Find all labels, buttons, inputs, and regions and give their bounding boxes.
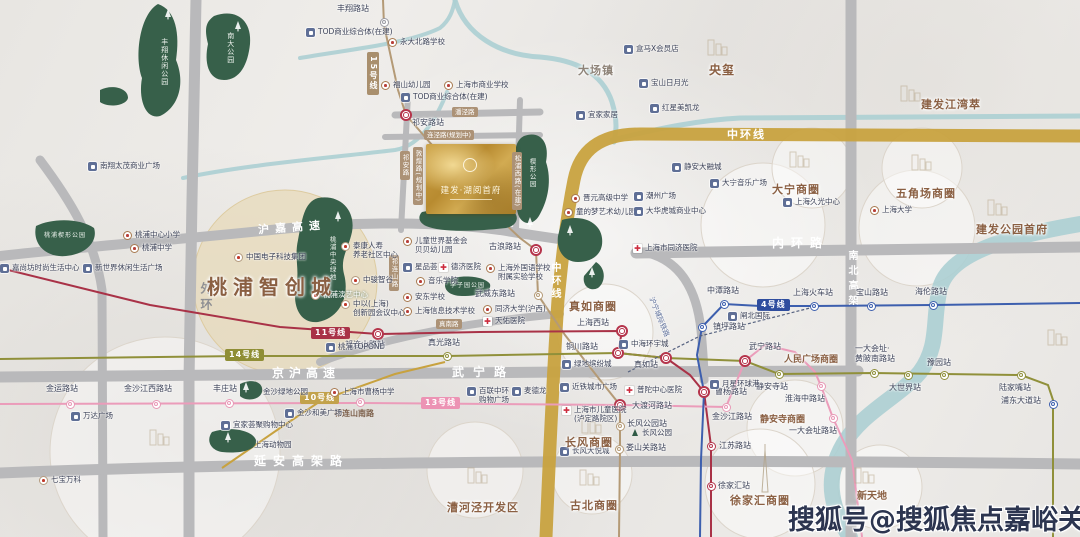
poi-label-line: 德济医院 (451, 262, 481, 271)
poi-label-line: 七宝万科 (51, 475, 81, 484)
building-sketch-icon (1062, 337, 1067, 345)
poi-label: 儿童世界基金会贝贝幼儿园 (415, 236, 468, 255)
school-icon (123, 231, 132, 240)
station-label-line: 祁安路站 (412, 118, 444, 128)
poi-label: 安东学校 (415, 292, 445, 301)
poi-label-line: (泸定路院区) (574, 414, 627, 423)
station-label-line: 一大会址· (855, 344, 895, 354)
poi-label: 同济大学(沪西) (495, 304, 546, 313)
poi-label-line: 上海市同济医院 (645, 243, 698, 252)
station-label: 大渡河路站 (632, 401, 672, 411)
road (0, 371, 858, 377)
hosp-icon (483, 317, 492, 326)
metro-station (707, 482, 716, 491)
station-label: 一大会址·黄陂南路站 (855, 344, 895, 363)
station-label: 祁安路站 (412, 118, 444, 128)
poi-label-line: 中骏智谷 (363, 275, 393, 284)
dot-icon (234, 253, 243, 262)
area-label: 大场镇 (578, 62, 614, 78)
metro-station (660, 352, 672, 364)
mall-icon (467, 387, 476, 396)
dot-icon (341, 300, 350, 309)
poi-label: 中国电子科技集团 (246, 252, 306, 261)
poi-label-line: 长风公园 (642, 428, 672, 437)
station-label-line: 浦东大道站 (1001, 396, 1041, 406)
area-label: 新天地 (857, 487, 887, 502)
metro-line-badge: 15号线 (367, 52, 379, 95)
poi-label-line: 桃浦中学 (142, 243, 172, 252)
poi-label-line: 盒马X会员店 (636, 44, 679, 53)
area-label: 建发公园首府 (976, 221, 1048, 237)
station-label-line: 铜川路站 (566, 342, 598, 352)
road-name-pill: 松浦西路(在建) (512, 152, 522, 210)
station-label: 金沙江路站 (712, 412, 752, 422)
poi-label-line: 金沙和美广场 (297, 408, 342, 417)
area-label: 静安寺商圈 (760, 412, 805, 425)
poi-label-line: 南翔太茂商业广场 (100, 161, 160, 170)
poi-label-line: 大华虎城商业中心 (646, 206, 706, 215)
school-icon (564, 208, 573, 217)
station-label: 娄山关路站 (626, 443, 666, 453)
station-label-line: 海伦路站 (915, 287, 947, 297)
tree-icon (237, 29, 238, 31)
poi-label: 盒马X会员店 (636, 44, 679, 53)
building-sketch-icon (915, 93, 920, 101)
station-label: 真如站 (634, 360, 658, 370)
metro-station (817, 382, 826, 391)
dot-icon (351, 276, 360, 285)
metro-station (530, 244, 542, 256)
poi-label-line: 万达广场 (83, 411, 113, 420)
poi-label: 金沙和美广场 (297, 408, 342, 417)
poi-label-line: 中国电子科技集团 (246, 252, 306, 261)
station-label-line: 金沙江西路站 (124, 384, 172, 394)
poi-label-line: 静安大融城 (684, 162, 722, 171)
park-label: 桃浦楔形公园 (44, 233, 86, 240)
poi-label: 金沙绿地公园 (263, 387, 308, 396)
building-sketch-icon (722, 47, 727, 55)
building-sketch-icon (716, 44, 721, 55)
poi-label: 上海市同济医院 (645, 243, 698, 252)
road-label: 延安高架路 (254, 452, 349, 469)
area-label: 五角场商圈 (896, 185, 956, 201)
school-icon (330, 388, 339, 397)
metro-station (720, 300, 729, 309)
poi-label-line: 上海市商业学校 (456, 80, 509, 89)
metro-station (615, 445, 624, 454)
road-name-pill: 真南路 (436, 319, 462, 329)
poi-label-line: 同济大学(沪西) (495, 304, 546, 313)
station-label: 海伦路站 (915, 287, 947, 297)
area-label: 建发江湾萃 (921, 96, 981, 112)
metro-station (722, 403, 731, 412)
poi-label: 德济医院 (451, 262, 481, 271)
metro-line-badge: 14号线 (225, 349, 264, 361)
station-label: 宝山路站 (856, 288, 888, 298)
building-sketch-icon (909, 90, 914, 101)
station-label: 曹杨路站 (715, 387, 747, 397)
building-sketch-icon (901, 86, 907, 101)
poi-label-line: 宜家家居 (588, 110, 618, 119)
park (558, 218, 603, 262)
area-label: 桃浦智创城 (207, 271, 337, 300)
metro-station (380, 18, 389, 27)
poi-label-line: 麦德龙 (524, 386, 547, 395)
tree-icon (630, 429, 639, 438)
poi-label: 长风公园 (642, 428, 672, 437)
station-label-line: 大世界站 (889, 383, 921, 393)
mall-icon (403, 263, 412, 272)
poi-label-line: 宜家荟聚购物中心 (233, 420, 293, 429)
station-label-line: 镇坪路站 (713, 322, 745, 332)
poi-label: 上海市商业学校 (456, 80, 509, 89)
road-name-pill: 祁连山路 (389, 255, 399, 291)
poi-label-line: 新世界休闲生活广场 (95, 263, 163, 272)
building-sketch-icon (1002, 207, 1007, 215)
school-icon (486, 264, 495, 273)
station-label-line: 大渡河路站 (632, 401, 672, 411)
poi-label: 星品荟 (415, 262, 438, 271)
poi-label: 近铁城市广场 (572, 382, 617, 391)
metro-station (400, 109, 412, 121)
property-seal-icon (463, 158, 477, 172)
poi-label: 童的梦艺术幼儿园 (576, 207, 636, 216)
poi-label: 上海动物园 (254, 440, 292, 449)
poi-label: 永大北路学校 (400, 37, 445, 46)
station-label-line: 金沙江路站 (712, 412, 752, 422)
station-label: 武宁路站 (749, 342, 781, 352)
poi-label-line: 中以(上海) (353, 299, 406, 308)
mall-icon (710, 380, 719, 389)
poi-label: 上海信息技术学校 (415, 306, 475, 315)
tree-icon (591, 275, 592, 277)
poi-label-line: 绿地缤纷城 (574, 359, 612, 368)
station-label: 江苏路站 (719, 441, 751, 451)
mall-icon (619, 340, 628, 349)
area-label: 大宁商圈 (772, 181, 820, 197)
station-label-line: 淮海中路站 (785, 394, 825, 404)
metro-station (698, 323, 707, 332)
poi-label: 中海环宇城 (631, 339, 669, 348)
station-label: 上海火车站 (793, 288, 833, 298)
area-label: 人民广场商圈 (784, 352, 838, 365)
mall-icon (650, 104, 659, 113)
building-sketch-icon (596, 425, 601, 433)
station-label-line: 一大会址路站 (789, 426, 837, 436)
poi-label: 上海市曹杨中学 (342, 387, 395, 396)
station-label: 豫园站 (927, 358, 951, 368)
station-label-line: 黄陂南路站 (855, 354, 895, 364)
poi-label-line: 永大北路学校 (400, 37, 445, 46)
poi-label: 上海大学 (882, 205, 912, 214)
poi-label: 七宝万科 (51, 475, 81, 484)
metro-station (225, 399, 234, 408)
school-icon (416, 277, 425, 286)
station-label-line: 徐家汇站 (718, 481, 750, 491)
metro-station (616, 325, 628, 337)
poi-label-line: 创新园会议中心 (353, 308, 406, 317)
school-icon (388, 38, 397, 47)
mall-icon (401, 93, 410, 102)
poi-label-line: 闸北国际 (740, 311, 770, 320)
school-icon (403, 237, 412, 246)
station-label: 金沙江西路站 (124, 384, 172, 394)
poi-label-line: TOD商业综合体(在建) (413, 92, 488, 101)
poi-label: 福山幼儿园 (393, 80, 431, 89)
mall-icon (0, 264, 9, 273)
station-label-line: 曹杨路站 (715, 387, 747, 397)
poi-label-line: 嘉尚坊时尚生活中心 (12, 263, 80, 272)
poi-label-line: 近铁城市广场 (572, 382, 617, 391)
building-sketch-icon (996, 204, 1001, 215)
poi-label: 大宁音乐广场 (722, 178, 767, 187)
tree-icon (167, 17, 168, 19)
metro-station (870, 369, 879, 378)
station-label: 丰翔路站 (337, 4, 369, 14)
metro-line-badge: 4号线 (757, 299, 790, 311)
metro-station (810, 302, 819, 311)
poi-label-line: 上海市儿童医院 (574, 405, 627, 414)
poi-label-line: 宝山日月光 (651, 78, 689, 87)
property-divider (450, 199, 492, 200)
building-sketch-icon (988, 200, 994, 215)
mall-icon (560, 383, 569, 392)
poi-label-line: 桃浦中心小学 (135, 230, 180, 239)
park-label: 楔形公园 (528, 158, 535, 188)
area-label: 真如商圈 (569, 298, 617, 314)
station-label-line: 真光路站 (428, 338, 460, 348)
school-icon (870, 206, 879, 215)
mall-icon (306, 28, 315, 37)
poi-label-line: 上海动物园 (254, 440, 292, 449)
watermark: 搜狐号@搜狐焦点嘉峪关站 (788, 498, 1080, 537)
property-name: 建发·湖阅首府 (426, 184, 516, 196)
poi-label-line: 儿童世界基金会 (415, 236, 468, 245)
poi-label: 中以(上海)创新园会议中心 (353, 299, 406, 318)
poi-label-line: 上海市曹杨中学 (342, 387, 395, 396)
road-label: 南北高架 (844, 250, 859, 310)
road-label: 内环路 (772, 234, 829, 251)
poi-label-line: 桃浦TOPONE (338, 342, 384, 351)
metro-station (940, 371, 949, 380)
metro-station (1017, 371, 1026, 380)
metro-location-map: 建发·湖阅首府 搜狐号@搜狐焦点嘉峪关站 京沪高速武宁路延安高架路内环路沪嘉高速… (0, 0, 1080, 537)
poi-label-line: 百联中环 (479, 386, 509, 395)
poi-label-line: 附属实验学校 (498, 272, 551, 281)
poi-label: 上海久光中心 (795, 197, 840, 206)
metro-station (443, 352, 452, 361)
station-label-line: 武宁路站 (749, 342, 781, 352)
park (100, 87, 128, 105)
station-label: 徐家汇站 (718, 481, 750, 491)
station-label-line: 上海西站 (577, 318, 609, 328)
mall-icon (83, 264, 92, 273)
poi-label-line: 潮州广场 (646, 191, 676, 200)
hosp-icon (562, 406, 571, 415)
road-name-pill: 敦煌路(规划中) (413, 147, 423, 205)
poi-label: 泰康人寿养老社区中心 (353, 241, 398, 260)
road-label: 中环线 (727, 126, 766, 142)
tree-icon (227, 440, 228, 442)
station-label-line: 武威东路站 (475, 289, 515, 299)
school-icon (130, 244, 139, 253)
poi-label: 宝山日月光 (651, 78, 689, 87)
poi-label-line: 泰康人寿 (353, 241, 398, 250)
poi-label: 上海外国语学校附属实验学校 (498, 263, 551, 282)
station-label: 一大会址路站 (789, 426, 837, 436)
poi-label: 静安大融城 (684, 162, 722, 171)
hosp-icon (625, 386, 634, 395)
mall-icon (71, 412, 80, 421)
poi-label: 嘉尚坊时尚生活中心 (12, 263, 80, 272)
poi-label: 月星环球港 (722, 379, 760, 388)
park (584, 262, 604, 289)
station-label-line: 上海火车站 (793, 288, 833, 298)
metro-station (775, 370, 784, 379)
area-label: 古北商圈 (570, 497, 618, 513)
hosp-icon (633, 244, 642, 253)
poi-label-line: 大宁音乐广场 (722, 178, 767, 187)
mall-icon (783, 198, 792, 207)
building-sketch-icon (708, 40, 714, 55)
station-label-line: 陆家嘴站 (999, 383, 1031, 393)
mall-icon (576, 111, 585, 120)
tree-icon (529, 225, 530, 227)
station-label-line: 宝山路站 (856, 288, 888, 298)
metro-station (707, 442, 716, 451)
building-sketch-icon (1056, 334, 1061, 345)
park-label: 丰翔休闲公园 (160, 38, 168, 86)
area-label: 央玺 (709, 61, 735, 78)
area-label: 漕河泾开发区 (447, 499, 519, 515)
metro-station (867, 302, 876, 311)
poi-label-line: 购物广场 (479, 395, 509, 404)
poi-label: 桃浦中心小学 (135, 230, 180, 239)
poi-label: 潮州广场 (646, 191, 676, 200)
poi-label: 绿地缤纷城 (574, 359, 612, 368)
school-icon (571, 194, 580, 203)
metro-station (356, 398, 365, 407)
poi-label-line: 上海大学 (882, 205, 912, 214)
station-label: 武威东路站 (475, 289, 515, 299)
station-label: 真光路站 (428, 338, 460, 348)
mall-icon (624, 45, 633, 54)
poi-label: 天佑医院 (495, 316, 525, 325)
poi-label: 麦德龙 (524, 386, 547, 395)
poi-label-line: 贝贝幼儿园 (415, 245, 468, 254)
metro-station (372, 328, 384, 340)
road-name-pill: 祁安路 (400, 151, 410, 180)
mall-icon (512, 387, 521, 396)
station-label: 陆家嘴站 (999, 383, 1031, 393)
station-label: 静安寺站 (756, 382, 788, 392)
poi-label-line: 天佑医院 (495, 316, 525, 325)
metro-station (66, 400, 75, 409)
road-name-pill: 潘泾路 (452, 107, 478, 117)
poi-label-line: 红星美凯龙 (662, 103, 700, 112)
mall-icon (639, 79, 648, 88)
poi-label-line: 福山幼儿园 (393, 80, 431, 89)
poi-label: 晋元高级中学 (583, 193, 628, 202)
poi-label: 宜家家居 (588, 110, 618, 119)
poi-label-line: 上海外国语学校 (498, 263, 551, 272)
poi-label: 新世界休闲生活广场 (95, 263, 163, 272)
station-label-line: 中潭路站 (707, 286, 739, 296)
mall-icon (672, 163, 681, 172)
station-label: 中潭路站 (707, 286, 739, 296)
poi-label: 南翔太茂商业广场 (100, 161, 160, 170)
hosp-icon (439, 263, 448, 272)
station-label-line: 娄山关路站 (626, 443, 666, 453)
metro-station (152, 400, 161, 409)
station-label-line: 金运路站 (46, 384, 78, 394)
metro-station (1049, 400, 1058, 409)
station-label: 大世界站 (889, 383, 921, 393)
station-label-line: 静安寺站 (756, 382, 788, 392)
metro-station (904, 371, 913, 380)
poi-label-line: 金沙绿地公园 (263, 387, 308, 396)
station-label: 镇坪路站 (713, 322, 745, 332)
station-label-line: 真如站 (634, 360, 658, 370)
poi-label: 红星美凯龙 (662, 103, 700, 112)
road-label: 京沪高速 (272, 364, 340, 381)
school-icon (381, 81, 390, 90)
mall-icon (634, 207, 643, 216)
mall-icon (710, 179, 719, 188)
poi-label-line: 星品荟 (415, 262, 438, 271)
metro-station (534, 291, 543, 300)
poi-label: 桃浦TOPONE (338, 342, 384, 351)
poi-label: 普陀中心医院 (637, 385, 682, 394)
mall-icon (285, 409, 294, 418)
station-label: 金运路站 (46, 384, 78, 394)
poi-label: 宜家荟聚购物中心 (233, 420, 293, 429)
building-sketch-icon (1048, 330, 1054, 345)
station-label-line: 古浪路站 (489, 242, 521, 252)
school-icon (483, 305, 492, 314)
mall-icon (221, 421, 230, 430)
tree-icon (569, 233, 570, 235)
road-label: 武宁路 (452, 363, 515, 380)
mall-icon (326, 343, 335, 352)
poi-label: 百联中环购物广场 (479, 386, 509, 405)
poi-label-line: 上海久光中心 (795, 197, 840, 206)
tree-icon (245, 390, 246, 392)
poi-label: 大华虎城商业中心 (646, 206, 706, 215)
area-label: 徐家汇商圈 (730, 492, 790, 508)
poi-label: 中骏智谷 (363, 275, 393, 284)
road-name-pill: 连泾路(规划中) (424, 130, 474, 140)
station-label: 丰庄站 (213, 384, 237, 394)
poi-label: 万达广场 (83, 411, 113, 420)
mall-icon (562, 360, 571, 369)
metro-station (698, 386, 710, 398)
station-label-line: 丰翔路站 (337, 4, 369, 14)
station-label: 浦东大道站 (1001, 396, 1041, 406)
poi-label-line: 中海环宇城 (631, 339, 669, 348)
tree-icon (337, 219, 338, 221)
poi-label-line: 普陀中心医院 (637, 385, 682, 394)
station-label-line: 丰庄站 (213, 384, 237, 394)
poi-label: 上海市儿童医院(泸定路院区) (574, 405, 627, 424)
poi-label-line: 音乐学院 (428, 276, 458, 285)
station-label: 淮海中路站 (785, 394, 825, 404)
poi-label-line: 晋元高级中学 (583, 193, 628, 202)
poi-label: TOD商业综合体(在建) (413, 92, 488, 101)
mall-icon (88, 162, 97, 171)
poi-label-line: 安东学校 (415, 292, 445, 301)
poi-label: 音乐学院 (428, 276, 458, 285)
